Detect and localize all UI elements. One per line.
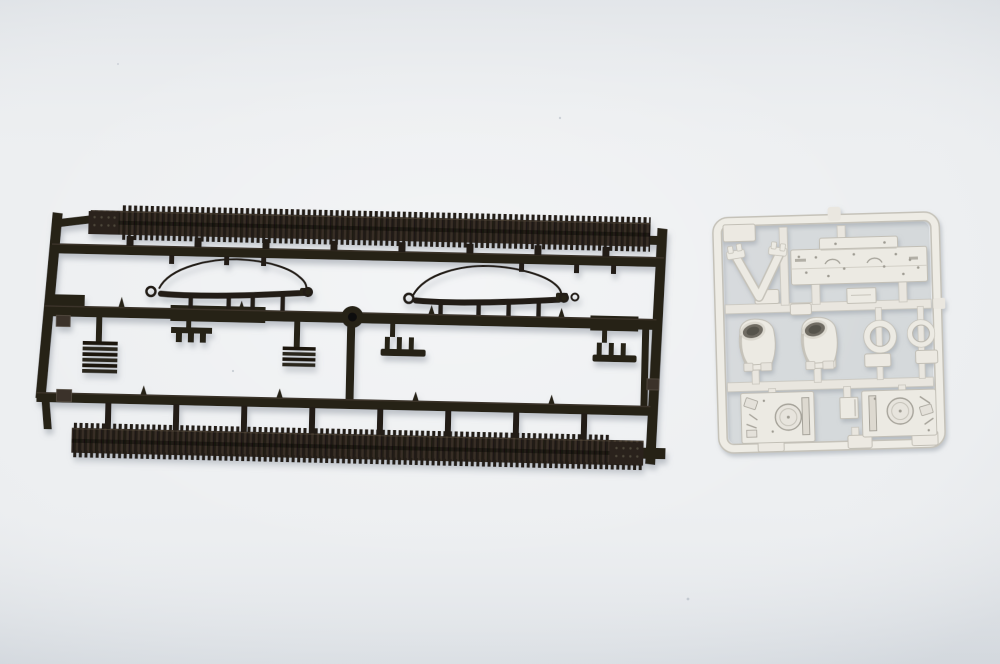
- roof-panel-right: [862, 389, 937, 437]
- light-sprue: [717, 204, 950, 453]
- photo-canvas: [0, 0, 1000, 664]
- small-block: [840, 397, 859, 418]
- roof-panel-left: [741, 391, 815, 443]
- housing-left: [739, 319, 776, 372]
- housing-right: [801, 317, 838, 370]
- photo-stage: [0, 0, 1000, 664]
